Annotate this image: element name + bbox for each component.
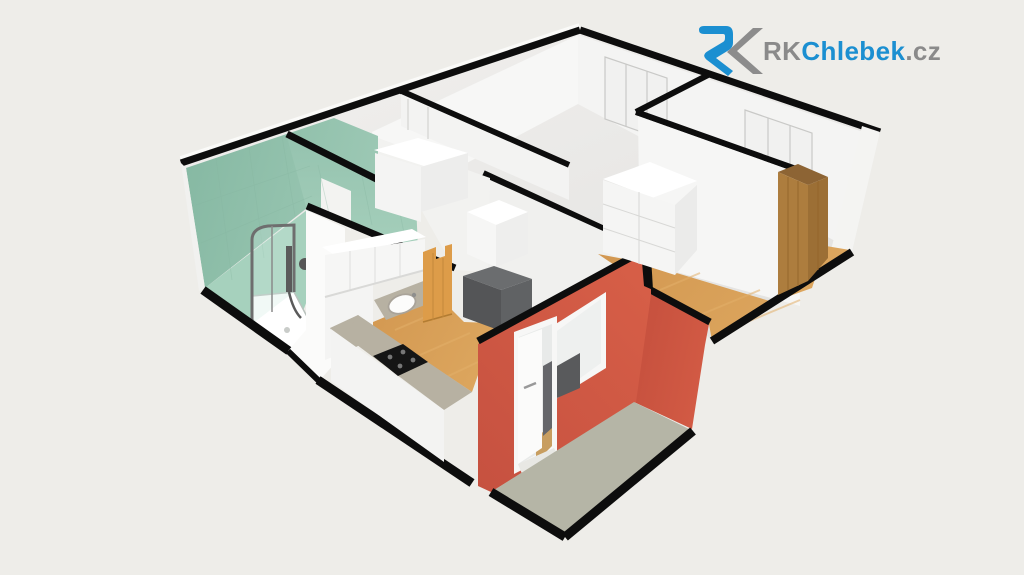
svg-text:RKChlebek.cz: RKChlebek.cz xyxy=(763,36,941,66)
